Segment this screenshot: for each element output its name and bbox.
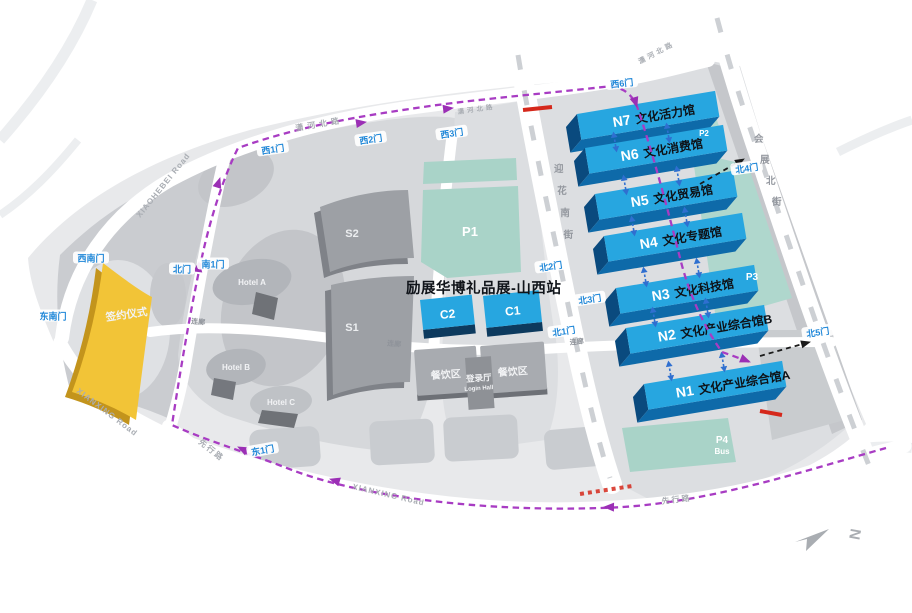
label-c2: C2 [439,306,456,322]
gate-southwest: 西南门 [73,252,109,264]
hall-n4-id: N4 [639,233,660,252]
parking-p3-label: P3 [746,272,759,283]
label-hotel-b: Hotel B [222,363,250,372]
gate-southeast: 东南门 [35,310,71,322]
label-hotel-a: Hotel A [238,278,266,287]
label-s1: S1 [345,322,358,334]
hall-n7-id: N7 [612,111,633,130]
hall-n2-id: N2 [657,326,678,345]
venue-map-canvas: C2 C1 N7文化活力馆 N6文化消费馆 N5文化贸易馆 [0,0,912,613]
gate-south1-label: 南1门 [201,259,224,270]
parking-p2-label: P2 [699,129,709,138]
gate-south1: 南1门 [197,258,229,270]
building-c1: C1 [483,290,543,337]
label-hotel-c: Hotel C [267,398,295,407]
gate-north-label: 北门 [173,264,191,275]
hall-n3-id: N3 [651,285,672,304]
label-login-hall: 登录厅 [465,372,493,384]
building-c2: C2 [420,295,476,339]
parking-p4-label: P4 [716,435,729,446]
gate-southwest-label: 西南门 [77,253,104,264]
parking-p1-label: P1 [462,224,478,239]
building-s1 [331,276,414,395]
label-c1: C1 [504,303,521,319]
gate-southeast-label: 东南门 [39,311,66,322]
hall-n5-id: N5 [630,191,651,210]
s-buildings [314,190,414,401]
venue-map: C2 C1 N7文化活力馆 N6文化消费馆 N5文化贸易馆 [0,0,912,613]
label-s2: S2 [345,228,358,240]
hall-n6-id: N6 [620,145,641,164]
parking-p4-type-label: Bus [714,447,730,456]
map-title: 励展华博礼品展-山西站 [406,279,561,297]
parking-p1-strip [423,158,517,184]
hall-n1-id: N1 [675,382,696,401]
gate-north: 北门 [169,263,195,275]
